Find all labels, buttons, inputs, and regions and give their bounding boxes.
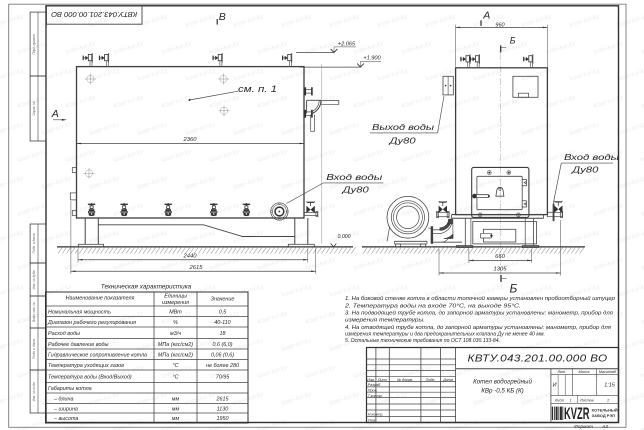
svg-text:960: 960 [495,22,505,28]
svg-text:18: 18 [220,331,226,337]
svg-text:1950: 1950 [217,416,229,422]
svg-text:+2.065: +2.065 [338,41,356,47]
svg-text:0,5: 0,5 [219,310,227,316]
svg-text:ЗАВОД РЭП: ЗАВОД РЭП [592,413,616,418]
svg-text:0.000: 0.000 [338,234,351,240]
svg-text:Лист: Лист [377,378,388,382]
svg-text:Лит.: Лит. [556,370,566,374]
svg-text:Подп. и дата: Подп. и дата [32,233,36,253]
svg-text:мм: мм [172,397,180,403]
svg-text:%: % [173,320,178,326]
svg-text:МВт: МВт [169,310,182,316]
svg-text:Рабочее давление воды: Рабочее давление воды [48,342,108,348]
svg-text:1. На боковой стенке котла в: 1. На боковой стенке котла в области топ… [345,295,616,302]
svg-text:измерения температуры и два пр: измерения температуры и два предохраните… [345,332,545,338]
svg-text:Номинальная мощность: Номинальная мощность [48,310,111,316]
svg-text:Инв. № подл.: Инв. № подл. [32,381,36,401]
svg-text:измерения температуры.: измерения температуры. [345,317,425,323]
svg-text:КВр -0,5 КБ (К): КВр -0,5 КБ (К) [481,387,523,394]
svg-text:2360: 2360 [183,137,198,143]
svg-text:Утв.: Утв. [368,418,376,422]
svg-text:°С: °С [172,375,178,381]
svg-text:Б: Б [510,36,516,46]
svg-text:Масштаб: Масштаб [599,370,617,374]
svg-text:Н.контр.: Н.контр. [368,412,384,416]
svg-text:2615: 2615 [189,265,204,271]
svg-text:А: А [51,108,59,120]
svg-text:Ду80: Ду80 [571,166,599,175]
svg-text:не более 280: не более 280 [206,363,239,369]
svg-text:Формат: Формат [574,424,593,430]
svg-text:Дата: Дата [442,378,453,382]
svg-text:Масса: Масса [579,370,590,374]
svg-text:2. Температура воды на входе: 2. Температура воды на входе 70°С, на вы… [344,303,521,309]
svg-text:4. На отводящей трубе котла,: 4. На отводящей трубе котла, до запорной… [345,324,612,331]
svg-text:Расход воды: Расход воды [48,331,80,337]
svg-text:Котел водогрейный: Котел водогрейный [473,378,532,385]
svg-text:м3/ч: м3/ч [170,331,181,337]
svg-text:Лист: Лист [554,398,565,402]
svg-text:Листов: Листов [579,398,594,402]
svg-text:2440: 2440 [183,253,198,259]
svg-text:0,06 (0,6): 0,06 (0,6) [211,353,234,359]
svg-text:№ докум.: № докум. [397,378,413,382]
svg-text:измерения: измерения [162,300,189,306]
svg-text:°С: °С [172,363,178,369]
svg-text:Вход воды: Вход воды [564,153,619,162]
svg-text:+1.900: +1.900 [363,56,381,62]
svg-text:Пров.: Пров. [368,389,378,393]
svg-text:1: 1 [570,398,572,402]
svg-text:3. На подводящей трубе котла,: 3. На подводящей трубе котла, до запорно… [345,310,614,317]
svg-text:Вход воды: Вход воды [326,173,382,182]
svg-text:Справ. №: Справ. № [32,101,36,116]
svg-text:40-110: 40-110 [214,320,230,326]
svg-text:Наименование показателя: Наименование показателя [66,296,135,302]
svg-text:Разраб.: Разраб. [368,383,381,387]
svg-text:КОТЕЛЬНЫЙ: КОТЕЛЬНЫЙ [592,408,618,413]
svg-text:мм: мм [172,407,180,413]
svg-text:Ду80: Ду80 [388,136,416,145]
svg-text:Перв. примен.: Перв. примен. [32,33,36,54]
svg-text:Диапазон рабочего регулировани: Диапазон рабочего регулирования [47,320,136,326]
svg-text:– высота: – высота [53,416,78,422]
svg-text:Температура уходящих газов: Температура уходящих газов [48,363,124,369]
svg-text:Значение: Значение [211,297,235,303]
svg-text:Единицы: Единицы [164,294,187,300]
svg-text:1:15: 1:15 [604,382,615,388]
svg-text:– ширина: – ширина [53,407,78,413]
svg-text:5. Остальные технические треб: 5. Остальные технические требования по О… [345,338,500,344]
svg-text:мм: мм [172,416,180,422]
svg-text:Б: Б [509,282,517,296]
svg-text:– длина: – длина [53,397,73,403]
svg-text:2615: 2615 [216,397,230,403]
svg-text:Т.контр.: Т.контр. [368,394,383,398]
svg-text:В: В [219,11,226,23]
svg-text:МПа (кгс/см2): МПа (кгс/см2) [158,342,193,348]
svg-text:Температура воды (Вход/Выход): Температура воды (Вход/Выход) [48,375,132,381]
svg-text:Взам. инв. №: Взам. инв. № [32,302,36,322]
svg-text:Инв. № дубл.: Инв. № дубл. [32,270,36,290]
svg-text:А: А [482,9,490,21]
svg-text:Выход воды: Выход воды [372,123,434,132]
svg-text:см. п. 1: см. п. 1 [238,84,277,94]
svg-text:Ду80: Ду80 [341,186,369,195]
svg-text:1305: 1305 [494,267,508,273]
svg-text:МПа (кгс/см2): МПа (кгс/см2) [158,353,193,359]
svg-text:1130: 1130 [217,407,229,413]
svg-text:Гидравлическое сопротивление к: Гидравлическое сопротивление котла [48,353,147,359]
svg-text:KVZR: KVZR [564,405,590,423]
svg-text:660: 660 [495,254,505,260]
svg-text:70/95: 70/95 [216,375,230,381]
svg-text:Техническая характеристика: Техническая характеристика [101,284,192,291]
svg-text:КВТУ.043.201.00.000 ВО: КВТУ.043.201.00.000 ВО [51,10,137,19]
svg-text:Подп.: Подп. [426,378,436,382]
svg-text:Габариты котла: Габариты котла [48,386,92,392]
svg-text:2: 2 [606,398,609,402]
svg-text:Изм.: Изм. [367,378,375,382]
svg-text:0,6 (6,0): 0,6 (6,0) [212,342,232,348]
svg-text:А3: А3 [601,424,608,430]
svg-text:КВТУ.043.201.00.000 ВО: КВТУ.043.201.00.000 ВО [468,354,608,365]
svg-text:И: И [553,382,557,388]
svg-text:Подп. и дата: Подп. и дата [32,339,36,359]
